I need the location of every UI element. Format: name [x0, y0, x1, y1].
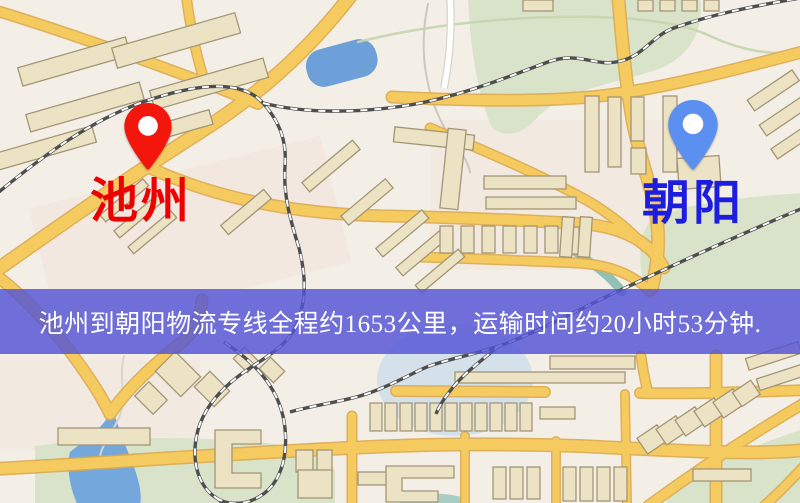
destination-city-label: 朝阳: [642, 180, 744, 228]
origin-city-label: 池州: [90, 178, 192, 226]
route-info-text: 池州到朝阳物流专线全程约1653公里，运输时间约20小时53分钟.: [39, 304, 762, 340]
destination-pin-icon: [667, 100, 719, 170]
route-info-banner: 池州到朝阳物流专线全程约1653公里，运输时间约20小时53分钟.: [0, 289, 800, 354]
origin-pin-icon: [122, 103, 174, 170]
map-background-art: [0, 0, 800, 503]
map-screenshot: 池州 朝阳 池州到朝阳物流专线全程约1653公里，运输时间约20小时53分钟.: [0, 0, 800, 503]
